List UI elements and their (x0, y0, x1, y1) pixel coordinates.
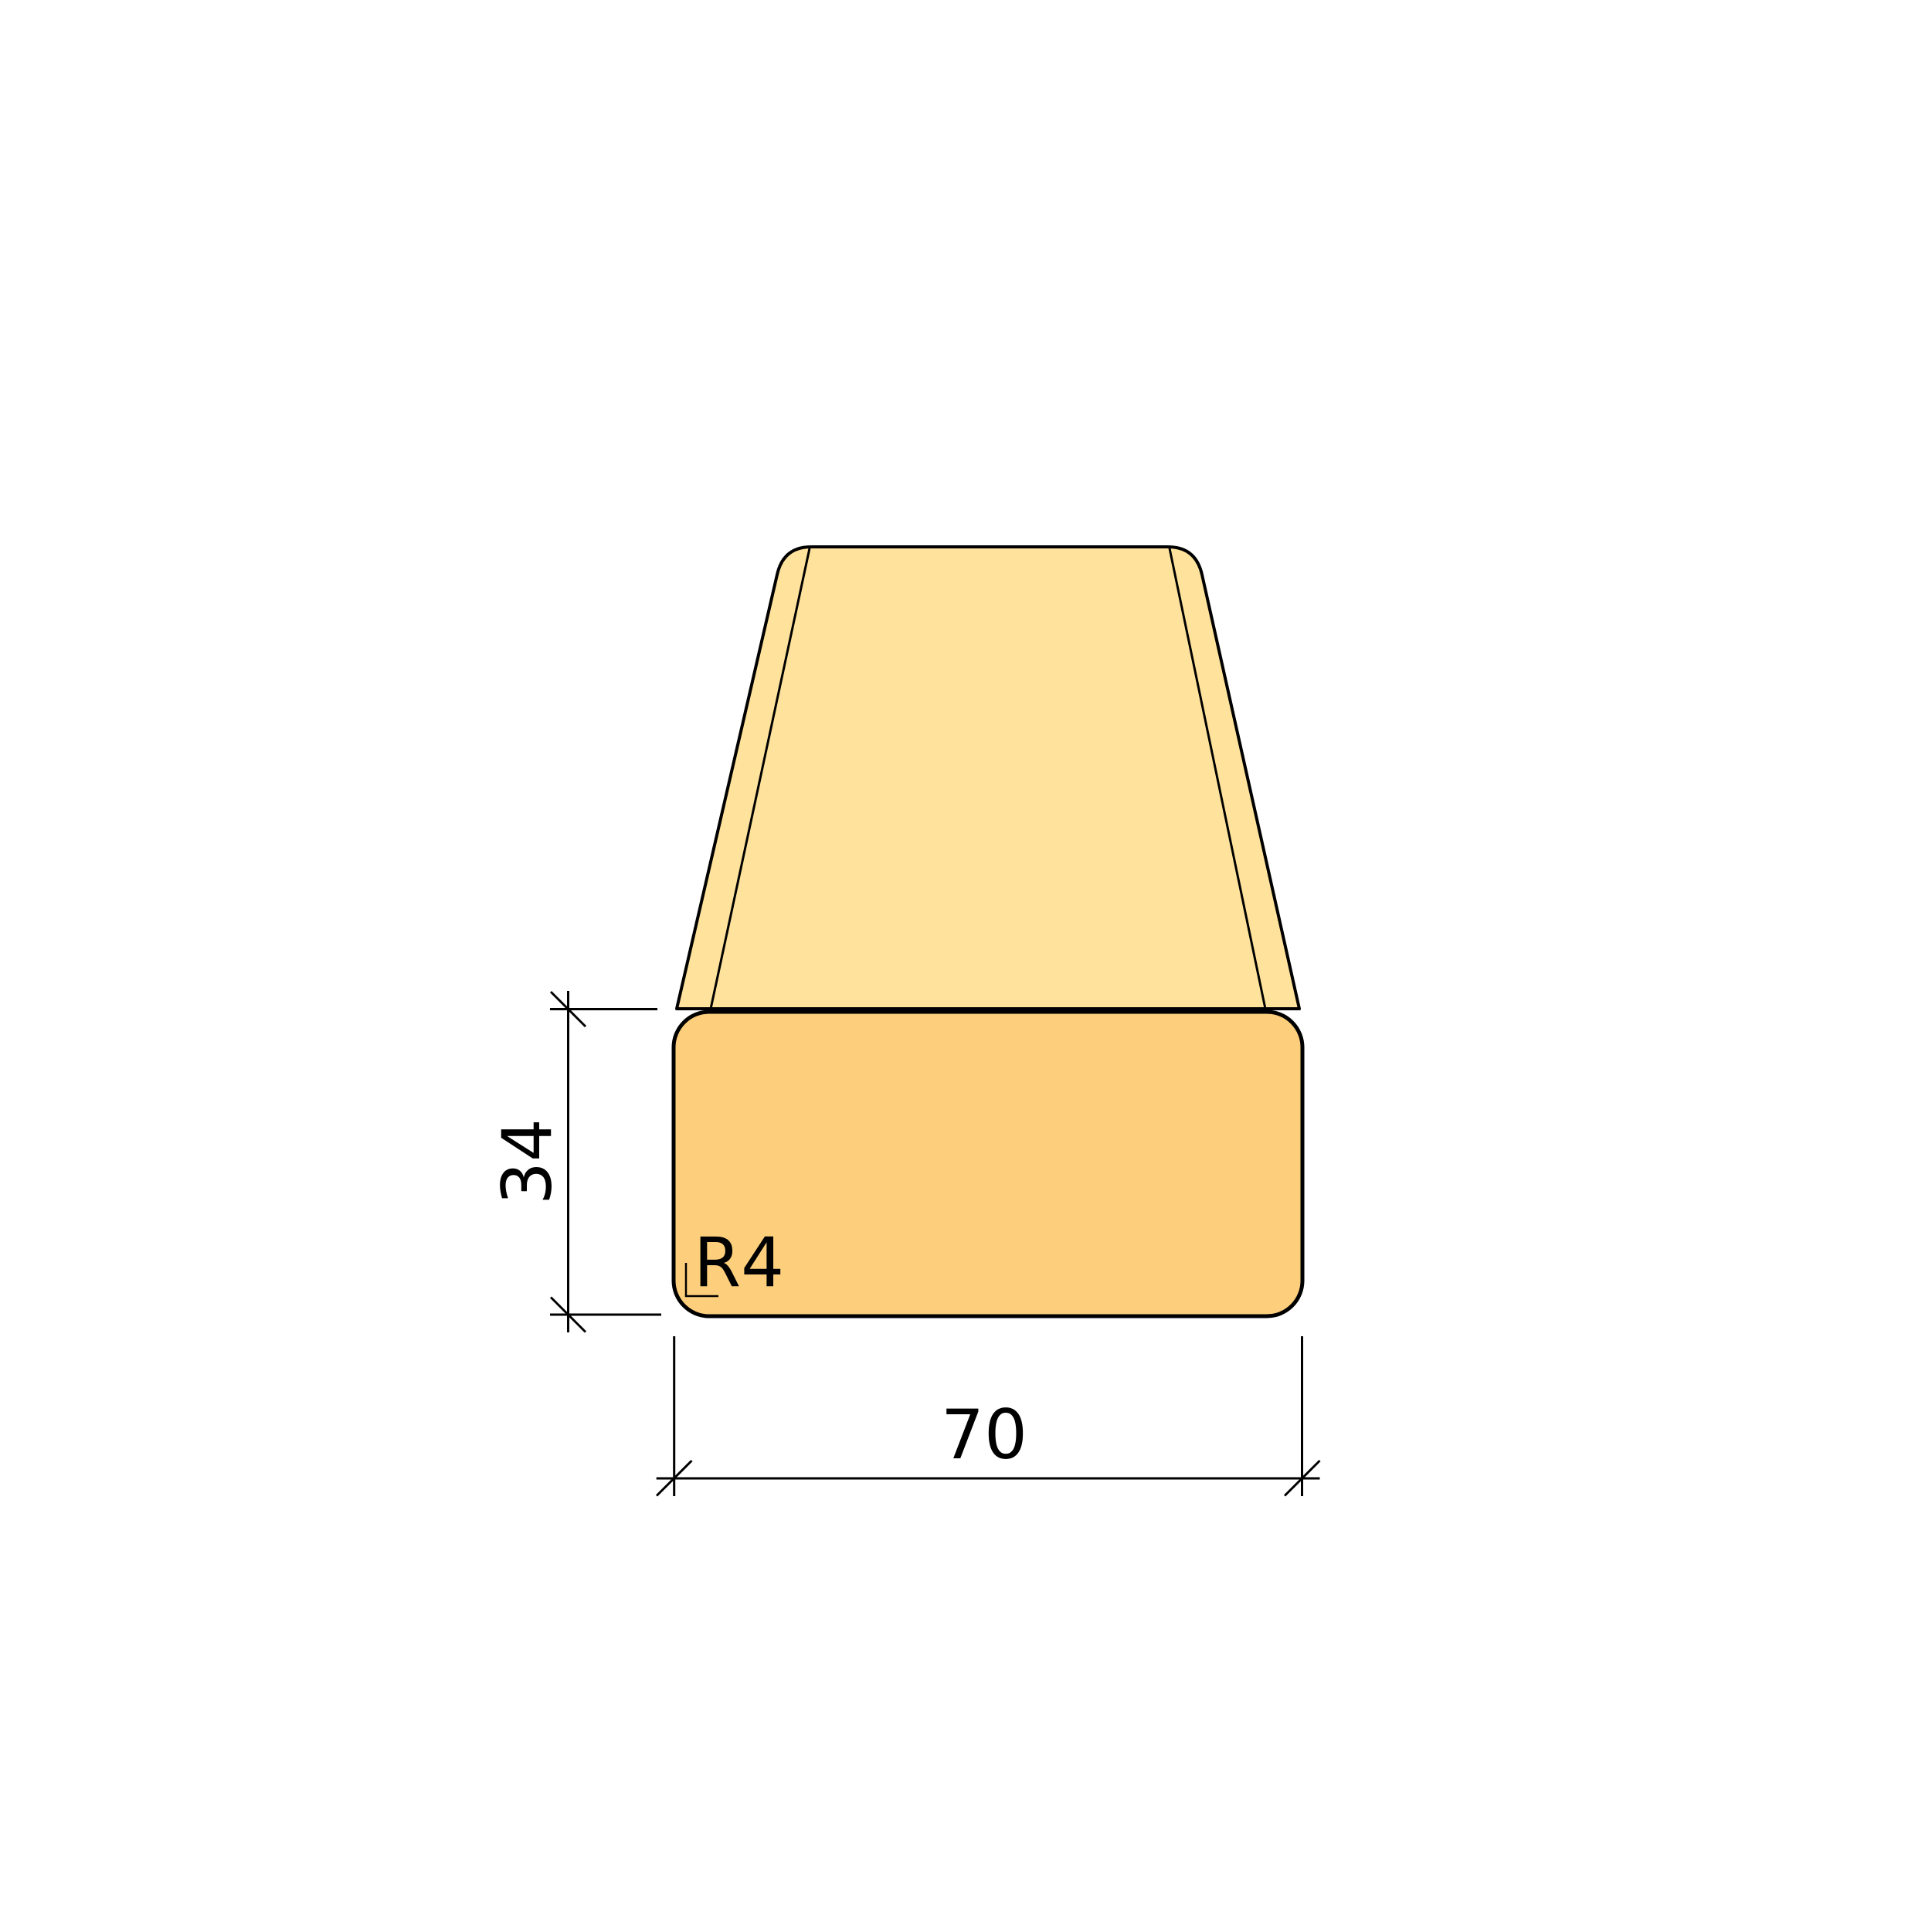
timber-profile-drawing: 34 70 R4 (0, 0, 1932, 1931)
technical-drawing-canvas: 34 70 R4 (0, 0, 1932, 1931)
radius-label: R4 (694, 1223, 784, 1302)
board-top-face (677, 547, 1299, 1009)
width-dimension-value: 70 (941, 1395, 1027, 1475)
height-dimension-value: 34 (487, 1118, 567, 1205)
